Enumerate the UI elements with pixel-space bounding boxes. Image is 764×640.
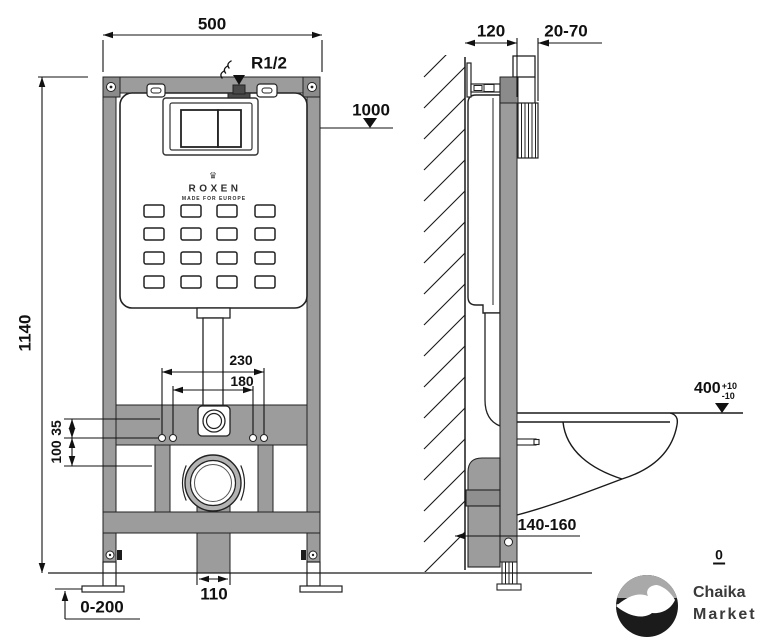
flush-button-small	[218, 110, 241, 147]
frame-top-side	[500, 77, 518, 103]
dim-offset-inlet: 35	[49, 420, 63, 436]
clip-icon	[301, 550, 306, 560]
tab-slot	[151, 88, 161, 93]
dim-holes-inner: 180	[230, 374, 253, 388]
mounting-hole	[159, 435, 166, 442]
clip-icon	[117, 550, 122, 560]
lower-crossbar	[103, 512, 320, 533]
fixing-rod-cap	[534, 440, 539, 445]
wall-hatching	[424, 36, 465, 573]
tab-slot	[262, 88, 272, 93]
dim-outlet-height: 140-160	[518, 518, 577, 534]
frame-hole	[505, 538, 513, 546]
flush-button-large	[181, 110, 218, 147]
screw-dot	[110, 86, 113, 89]
floor-level-zero: 0	[713, 548, 725, 565]
dim-plate-height: 1000	[352, 102, 390, 119]
dim-holes-outer: 230	[229, 353, 252, 367]
strut-right	[258, 445, 273, 512]
dim-frame-height: 1140	[17, 315, 34, 352]
dim-water-inlet: R1/2	[251, 55, 287, 72]
watermark-logo	[616, 575, 680, 637]
tolerance-minus: -10	[722, 391, 737, 401]
level-mark-icon	[363, 118, 377, 128]
flush-pipe	[197, 308, 230, 406]
tolerance-plus: +10	[722, 381, 737, 391]
watermark-line1: Chaika	[693, 582, 757, 604]
foot-side	[497, 562, 521, 590]
bowl-height-value: 400	[694, 381, 721, 397]
watermark-text: Chaika Market	[693, 582, 757, 625]
frame-rail-right	[307, 77, 320, 562]
leg-left	[103, 562, 116, 586]
dim-drain-width: 110	[200, 586, 227, 603]
drain-outlet	[183, 455, 245, 511]
mounting-hole	[170, 435, 177, 442]
flush-plate-side	[518, 103, 538, 158]
flush-pipe-side	[485, 313, 500, 426]
dim-frame-width: 500	[198, 16, 226, 33]
dim-feet-adjust: 0-200	[80, 599, 123, 616]
dim-offset-holes: 100	[49, 440, 63, 463]
foot-plate-right	[300, 586, 342, 592]
level-mark-icon	[715, 403, 729, 413]
dim-frame-depth: 120	[477, 23, 505, 40]
brand-tagline: MADE FOR EUROPE	[182, 196, 246, 202]
fixing-rod	[517, 439, 536, 445]
dim-plate-depth: 20-70	[544, 23, 587, 40]
plate-spacer-box	[513, 56, 535, 77]
drawing-canvas	[0, 0, 764, 640]
side-view	[424, 36, 743, 590]
mounting-hole	[250, 435, 257, 442]
drain-pipe	[197, 533, 230, 573]
frame-bar-side	[500, 103, 517, 562]
cistern-side	[468, 95, 500, 313]
strut-left	[155, 445, 170, 512]
flush-plate	[163, 98, 258, 155]
leg-right	[307, 562, 320, 586]
brand-name: ROXEN	[188, 184, 241, 195]
toilet-bowl	[517, 413, 743, 515]
dim-bowl-height: 400 +10 -10	[694, 381, 737, 402]
wall-bracket	[467, 63, 500, 97]
middle-crossbar	[116, 405, 307, 445]
installation-drawing: 500 R1/2 1000 1140 230 180 35 100 110 0-…	[0, 0, 764, 640]
frame-rail-left	[103, 77, 116, 562]
mounting-hole	[261, 435, 268, 442]
watermark-line2: Market	[693, 604, 757, 626]
screw-dot	[311, 86, 314, 89]
frame-top-rail	[103, 77, 320, 93]
crown-icon: ♛	[209, 171, 217, 182]
drain-elbow	[466, 458, 500, 567]
water-flow-icon	[221, 61, 231, 78]
front-view	[82, 61, 342, 592]
foot-plate-left	[82, 586, 124, 592]
